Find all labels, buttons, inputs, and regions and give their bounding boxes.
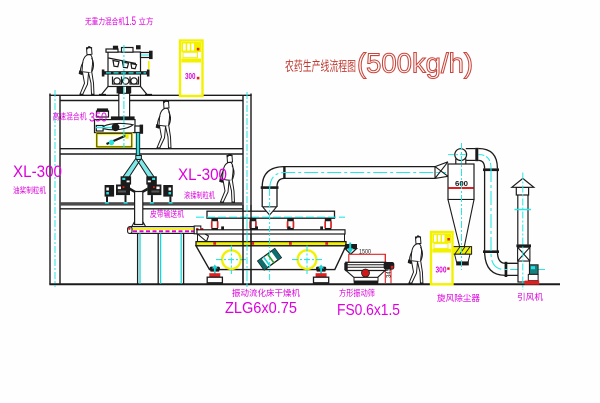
svg-text:引风机: 引风机 [517, 291, 543, 302]
svg-text:300: 300 [436, 265, 447, 275]
svg-text:300: 300 [185, 72, 196, 81]
svg-text:方形振动筛: 方形振动筛 [339, 288, 375, 298]
svg-text:振动流化床干燥机: 振动流化床干燥机 [232, 288, 300, 298]
svg-text:XL-300: XL-300 [178, 166, 227, 184]
svg-text:FS0.6x1.5: FS0.6x1.5 [337, 302, 400, 319]
svg-text:1500: 1500 [359, 249, 371, 256]
svg-text:旋风除尘器: 旋风除尘器 [437, 292, 480, 303]
svg-text:XL-300: XL-300 [13, 163, 62, 181]
svg-text:高速混合机: 高速混合机 [53, 112, 87, 122]
svg-text:350: 350 [89, 111, 107, 125]
svg-text:油桨制粒机: 油桨制粒机 [13, 185, 46, 195]
svg-text:皮带输送机: 皮带输送机 [150, 209, 184, 219]
svg-text:1.5: 1.5 [125, 16, 136, 28]
svg-text:ZLG6x0.75: ZLG6x0.75 [225, 300, 297, 317]
svg-text:(500kg/h): (500kg/h) [357, 48, 473, 79]
svg-text:无重力混合机: 无重力混合机 [85, 16, 125, 27]
svg-text:滚揉制粒机: 滚揉制粒机 [184, 190, 215, 200]
svg-text:农药生产线流程图: 农药生产线流程图 [285, 59, 356, 74]
svg-text:立方: 立方 [139, 16, 154, 27]
